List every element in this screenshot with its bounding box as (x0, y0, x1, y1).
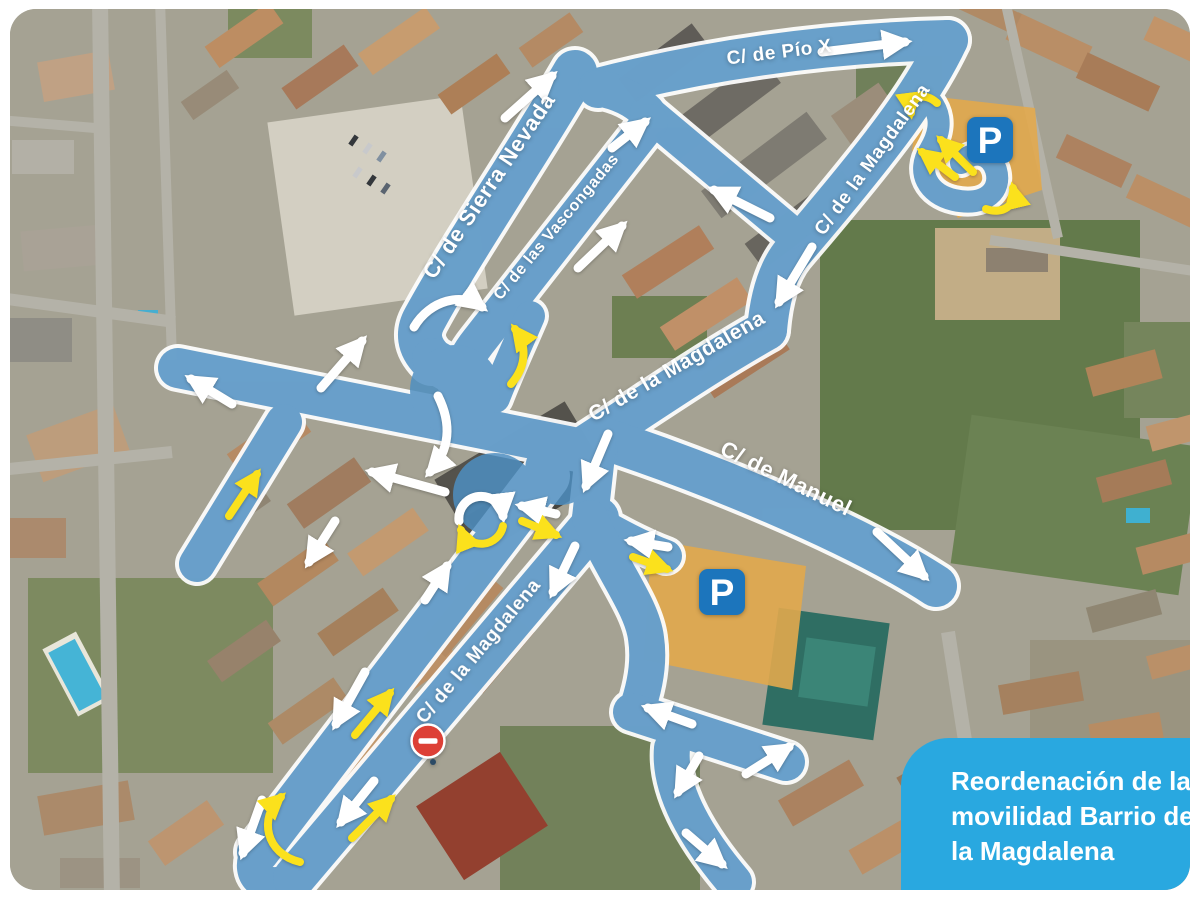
terrain-block (1126, 508, 1150, 523)
road-junction (410, 345, 500, 435)
terrain-block (798, 637, 876, 706)
sign-post (430, 759, 436, 765)
terrain-block (10, 318, 72, 362)
info-card-line: la Magdalena (951, 834, 1190, 869)
info-card: Reordenación de la movilidad Barrio de l… (901, 738, 1190, 890)
no-entry-bar (419, 738, 438, 744)
parking-icon: P (967, 117, 1013, 163)
info-card-line: movilidad Barrio de (951, 799, 1190, 834)
terrain-block (12, 140, 74, 174)
terrain-block (10, 518, 66, 558)
parking-letter: P (978, 120, 1003, 161)
parking-letter: P (710, 572, 735, 613)
terrain-block (60, 858, 140, 888)
direction-arrow-white (631, 541, 668, 547)
road-junction (525, 435, 595, 505)
parking-icon: P (699, 569, 745, 615)
terrain-block (20, 225, 103, 272)
page-frame: C/ de Pío XC/ de Sierra NevadaC/ de las … (0, 0, 1200, 900)
magdalena-mobility-map: C/ de Pío XC/ de Sierra NevadaC/ de las … (10, 9, 1190, 890)
info-card-line: Reordenación de la (951, 764, 1190, 799)
